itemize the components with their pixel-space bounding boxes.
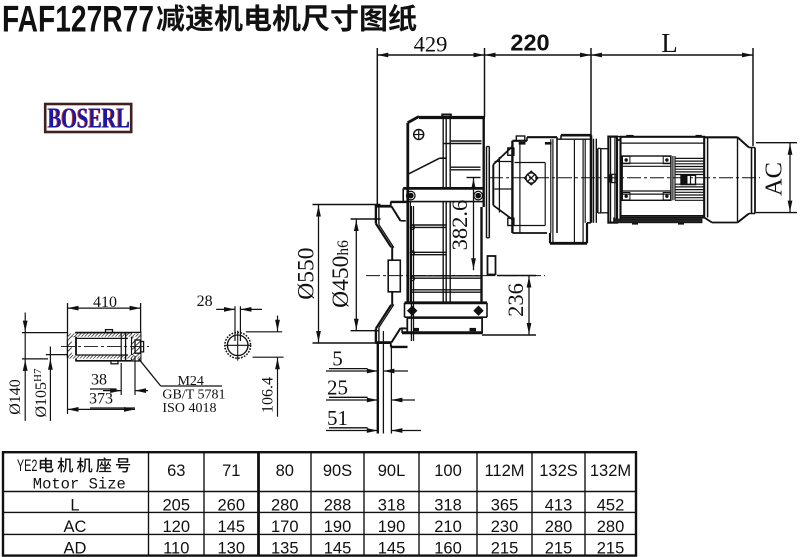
- svg-text:280: 280: [271, 497, 299, 515]
- svg-text:L: L: [661, 28, 678, 58]
- svg-text:80: 80: [276, 462, 294, 480]
- svg-text:220: 220: [510, 30, 549, 56]
- svg-text:120: 120: [162, 518, 190, 536]
- svg-text:Ø140: Ø140: [7, 379, 24, 415]
- svg-text:170: 170: [271, 518, 299, 536]
- svg-text:452: 452: [597, 497, 625, 515]
- svg-text:AC: AC: [761, 162, 788, 196]
- svg-text:210: 210: [434, 518, 462, 536]
- svg-text:112M: 112M: [484, 462, 524, 480]
- svg-text:280: 280: [597, 518, 625, 536]
- svg-text:71: 71: [222, 462, 240, 480]
- svg-text:106.4: 106.4: [260, 377, 277, 413]
- svg-text:318: 318: [378, 497, 406, 515]
- svg-text:Ø550: Ø550: [294, 247, 320, 299]
- svg-text:25: 25: [327, 376, 348, 400]
- svg-text:365: 365: [491, 497, 519, 515]
- svg-text:145: 145: [217, 518, 245, 536]
- svg-text:100: 100: [434, 462, 462, 480]
- svg-text:90S: 90S: [323, 462, 352, 480]
- svg-text:382.6: 382.6: [447, 200, 472, 251]
- svg-text:BOSERL: BOSERL: [48, 104, 130, 135]
- svg-text:51: 51: [327, 406, 348, 430]
- svg-text:260: 260: [217, 497, 245, 515]
- svg-text:YE2: YE2: [17, 457, 38, 475]
- svg-text:145: 145: [324, 539, 352, 557]
- svg-text:28: 28: [197, 293, 213, 310]
- svg-text:429: 429: [414, 32, 448, 57]
- svg-text:AC: AC: [64, 518, 87, 536]
- svg-text:190: 190: [378, 518, 406, 536]
- svg-text:63: 63: [167, 462, 185, 480]
- svg-text:5: 5: [332, 347, 343, 371]
- svg-text:38: 38: [91, 372, 107, 389]
- svg-text:130: 130: [217, 539, 245, 557]
- svg-text:230: 230: [491, 518, 519, 536]
- svg-text:215: 215: [491, 539, 519, 557]
- svg-text:215: 215: [545, 539, 573, 557]
- svg-text:90L: 90L: [378, 462, 406, 480]
- svg-text:288: 288: [324, 497, 352, 515]
- svg-text:132S: 132S: [539, 462, 578, 480]
- svg-text:160: 160: [434, 539, 462, 557]
- svg-text:Motor Size: Motor Size: [33, 475, 126, 493]
- svg-text:410: 410: [93, 294, 117, 311]
- svg-text:FAF127R77: FAF127R77: [2, 0, 154, 39]
- svg-text:205: 205: [162, 497, 190, 515]
- svg-text:110: 110: [163, 539, 189, 557]
- svg-text:132M: 132M: [590, 462, 631, 480]
- svg-text:318: 318: [434, 497, 462, 515]
- svg-text:AD: AD: [64, 539, 87, 557]
- svg-text:413: 413: [545, 497, 573, 515]
- svg-text:L: L: [70, 497, 79, 515]
- svg-text:ISO 4018: ISO 4018: [162, 401, 216, 416]
- svg-text:135: 135: [271, 539, 299, 557]
- svg-text:236: 236: [503, 283, 528, 317]
- svg-text:145: 145: [378, 539, 406, 557]
- svg-text:373: 373: [89, 391, 113, 408]
- svg-text:190: 190: [324, 518, 352, 536]
- svg-text:280: 280: [545, 518, 573, 536]
- svg-text:215: 215: [597, 539, 625, 557]
